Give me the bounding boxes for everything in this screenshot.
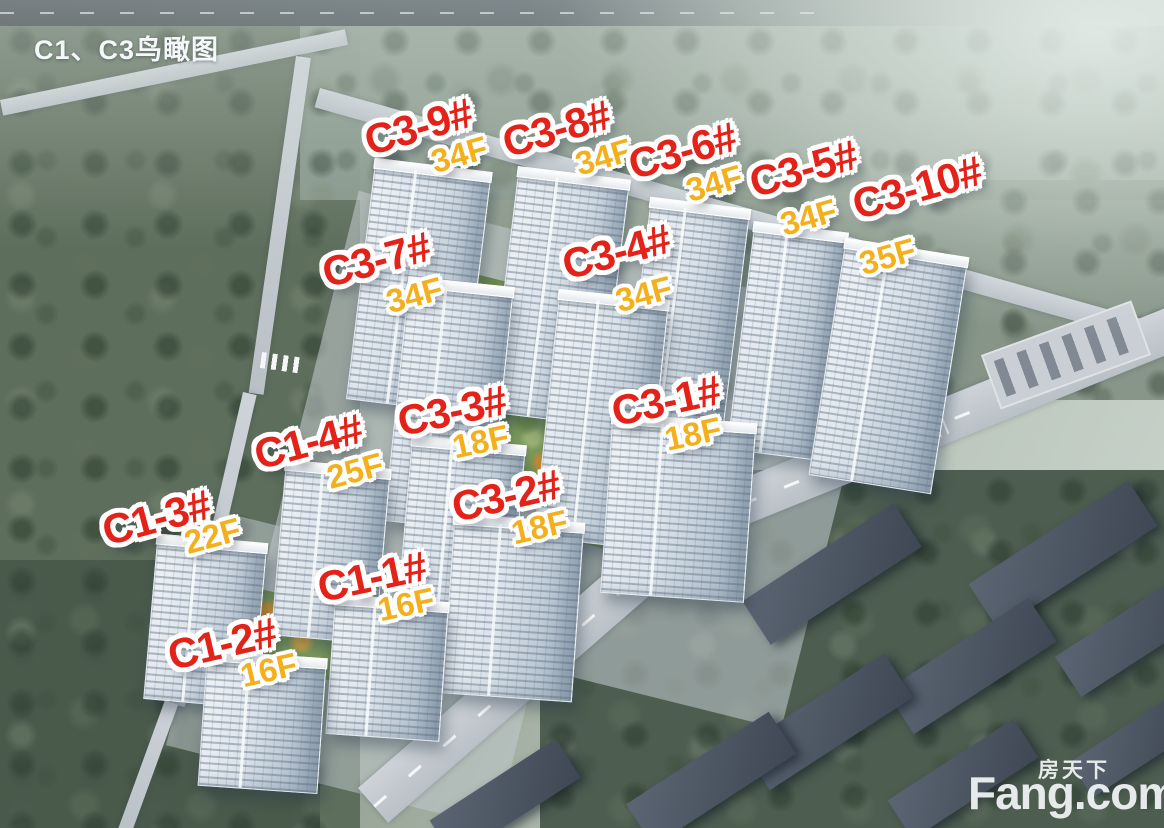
page-title: C1、C3鸟瞰图 [34, 28, 219, 67]
aerial-rendering: C3-9# 34F C3-8# 34F C3-6# 34F C3-5# 34F … [0, 0, 1164, 828]
highway-strip [0, 0, 1164, 26]
watermark-cn-text: 房天下 [1038, 754, 1110, 784]
watermark: 房天下 Fang.com [968, 756, 1164, 816]
